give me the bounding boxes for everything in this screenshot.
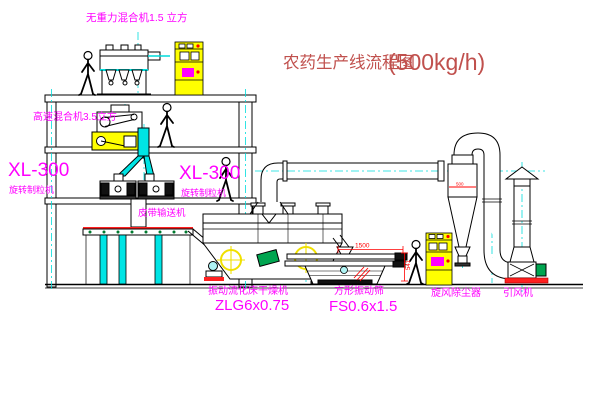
floor-slab-top <box>45 95 256 102</box>
label-granulator-left-model: XL-300 <box>8 160 69 181</box>
worker-figure <box>158 104 174 148</box>
fan-motor <box>536 264 546 276</box>
dim-screen-height: 541 <box>406 259 412 270</box>
label-dryer-model: ZLG6x0.75 <box>215 297 289 314</box>
control-cabinet-top <box>175 42 203 95</box>
granulators <box>100 174 174 199</box>
control-cabinet-right <box>426 233 452 285</box>
title-capacity: (500kg/h) <box>388 49 485 75</box>
label-belt-conveyor: 皮带输送机 <box>138 207 186 219</box>
label-granulator-right-model: XL-300 <box>179 163 240 184</box>
worker-figure <box>79 52 95 96</box>
cad-drawing: 农药生产线流程图 (500kg/h) 无重力混合机1.5 立方 高速混合机3.5… <box>0 0 600 403</box>
label-screen-name: 方形振动筛 <box>334 284 384 297</box>
cabinet-display <box>182 68 194 77</box>
gravity-free-mixer <box>97 45 170 94</box>
label-granulator-left-name: 旋转制粒机 <box>9 184 54 195</box>
label-high-speed-mixer: 高速混合机3.5立方 <box>33 110 117 123</box>
process-flow-diagram: 农药生产线流程图 (500kg/h) 无重力混合机1.5 立方 高速混合机3.5… <box>0 0 600 403</box>
exhaust-stack-fan <box>505 167 548 283</box>
label-screen-model: FS0.6x1.5 <box>329 298 397 315</box>
dim-screen-length: 1500 <box>355 243 370 250</box>
granulator-right-hopper <box>145 174 154 181</box>
cabinet-display <box>431 257 444 266</box>
label-granulator-right-name: 旋转制粒机 <box>181 187 226 198</box>
granulator-left-hopper <box>114 174 123 181</box>
label-fan: 引风机 <box>503 286 533 299</box>
cyclone-separator <box>448 133 518 281</box>
floor-slab-second <box>45 147 256 153</box>
dim-cyclone: 500 <box>456 182 464 187</box>
label-dryer-name: 振动流化床干燥机 <box>208 284 288 297</box>
label-top-mixer: 无重力混合机1.5 立方 <box>86 11 188 24</box>
label-cyclone: 旋风除尘器 <box>431 286 481 299</box>
